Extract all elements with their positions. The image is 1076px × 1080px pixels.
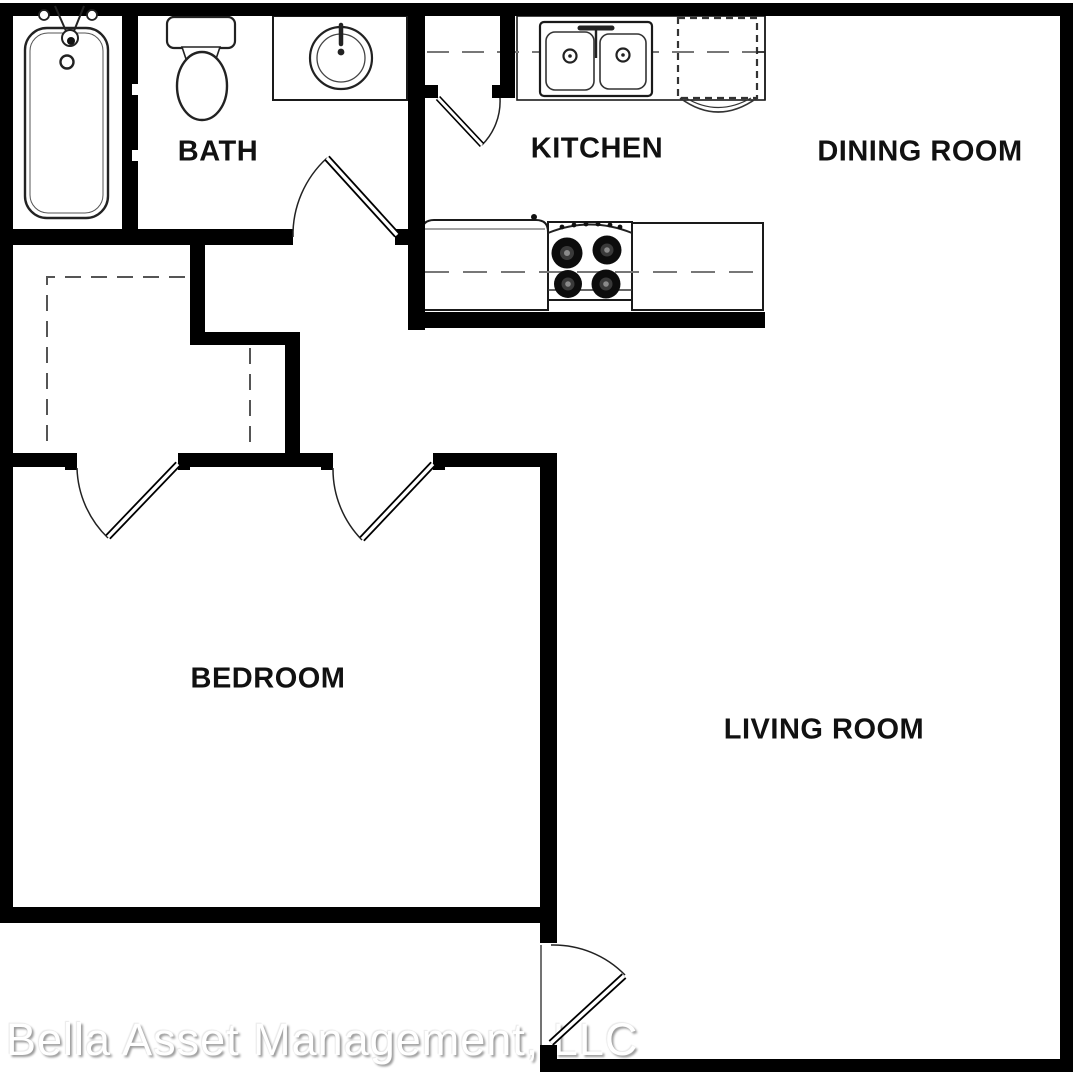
burner [554,270,582,298]
bedroom-door-arc [333,468,362,540]
burner [552,238,583,269]
bath-door [293,158,397,237]
wall-bedroom-bottom [0,907,557,923]
toilet [167,17,235,120]
counter-knob [531,214,537,220]
closet-door [77,464,178,538]
tub-handle-right [87,10,97,20]
burner [593,236,622,265]
wall-bedroom-right [540,465,557,943]
floor-plan: Bella Asset Management, LLC [0,0,1076,1080]
bathtub-drain [61,56,74,69]
wall-bedroom-top-b [178,453,333,467]
tub-handle-left [39,10,49,20]
room-label-dining: DINING ROOM [817,136,1022,169]
entry-door-leaf-inner [551,976,624,1043]
vanity-sink [273,16,407,100]
wall-kitchen-bottom [408,312,765,328]
wall-closet-vertical-upper [190,245,205,345]
wall-pantry-right [500,3,515,98]
wall-pantry-hinge-stub [425,85,438,98]
pantry-door [438,98,500,145]
kitchen-double-sink [540,22,652,96]
closet-door-leaf-inner [108,464,178,537]
sink-drain-left-dot [568,54,572,58]
room-label-bath: BATH [178,136,258,169]
room-label-kitchen: KITCHEN [531,133,663,166]
toilet-bowl [177,52,227,120]
wall-closet-vertical-lower [285,345,300,465]
bedroom-door-leaf-inner [362,464,433,539]
sink-drain-right-dot [621,53,625,57]
pantry-door-leaf-inner [438,98,482,145]
bathtub [25,28,108,218]
toilet-tank [167,17,235,48]
wall-hinge-stub [433,453,445,470]
bath-door-leaf-inner [327,158,397,235]
wall-hinge-stub [65,453,77,470]
closet-door-arc [77,468,108,538]
wall-bath-kitchen-divider [408,3,425,330]
wall-hinge-stub [178,453,190,470]
pantry-door-arc [482,98,500,145]
wall-bedroom-top-c [433,453,557,467]
counter-lower-right [632,223,763,310]
wall-closet-horizontal [190,332,300,345]
closet-rod-dashes [47,277,250,450]
wall-right [1060,3,1073,1072]
wall-pantry-latch-stub [492,85,515,98]
counter-lower-left [422,220,548,310]
sink-faucet-dot [338,49,345,56]
room-label-bedroom: BEDROOM [191,663,346,696]
wall-bottom [540,1059,1073,1072]
wall-bath-bottom [0,229,293,245]
burner [592,270,621,299]
room-label-living: LIVING ROOM [724,714,924,747]
wall-top [0,3,1073,16]
wall-entry-below [540,1045,557,1072]
wall-hinge-stub [321,453,333,470]
bedroom-door [333,464,433,540]
closet-rod-left [47,277,185,450]
entry-door-arc [551,945,625,975]
bath-door-arc [293,158,327,237]
tub-spout [67,37,75,45]
wall-tub-divider [122,14,138,229]
entry-door [541,945,625,1045]
